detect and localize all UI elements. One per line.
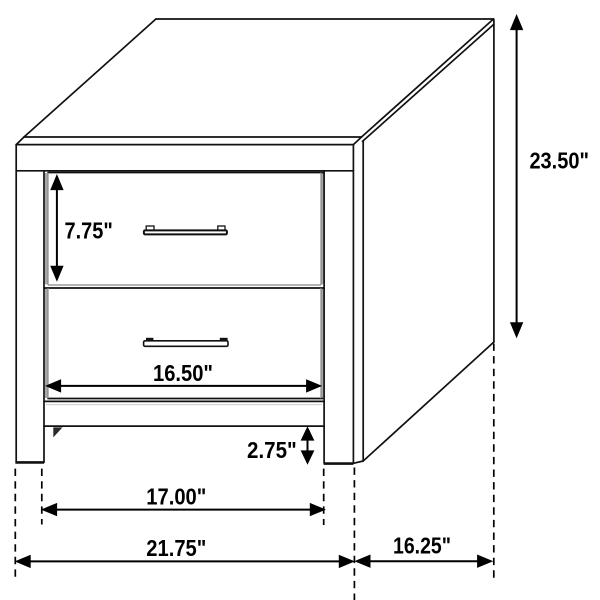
svg-text:21.75": 21.75"	[146, 535, 206, 561]
svg-text:16.50": 16.50"	[153, 360, 213, 386]
svg-text:2.75": 2.75"	[247, 437, 297, 463]
svg-text:17.00": 17.00"	[146, 483, 206, 509]
svg-text:23.50": 23.50"	[529, 147, 589, 173]
svg-text:7.75": 7.75"	[65, 218, 113, 244]
svg-text:16.25": 16.25"	[393, 532, 451, 558]
